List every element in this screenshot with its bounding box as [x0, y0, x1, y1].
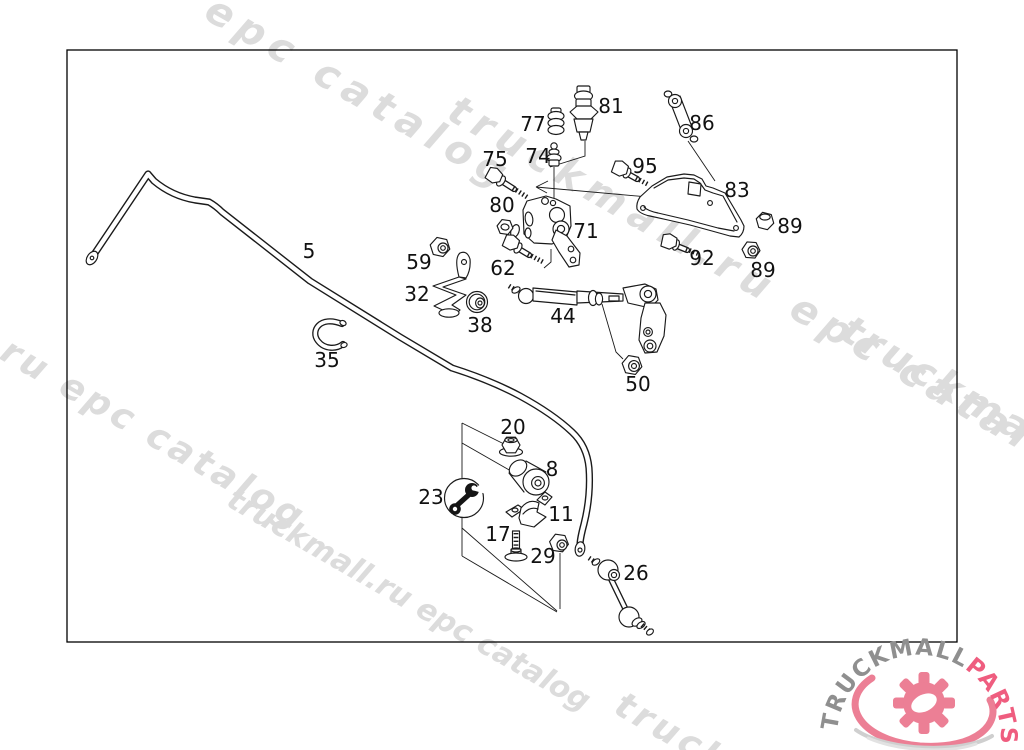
parts-diagram: truckmall.ru epc catalog truckmall.ru ep…: [0, 0, 1024, 750]
part-label-71: 71: [573, 219, 598, 243]
part-label-29: 29: [530, 544, 555, 568]
part-label-11: 11: [548, 502, 573, 526]
part-label-74: 74: [525, 144, 550, 168]
part-label-59: 59: [406, 250, 431, 274]
part-23-service-symbol: [445, 479, 487, 522]
part-label-62: 62: [490, 256, 515, 280]
part-77-bellows: [548, 108, 564, 135]
part-label-92: 92: [689, 246, 714, 270]
part-35-clip: [315, 319, 348, 348]
part-32-bracket: [433, 252, 470, 317]
part-label-83: 83: [724, 178, 749, 202]
part-20-nut: [500, 437, 523, 456]
gear-icon: [893, 672, 955, 734]
logo-brand-text: TRUCKMALL: [817, 635, 973, 732]
part-label-44: 44: [550, 304, 575, 328]
part-label-80: 80: [489, 193, 514, 217]
watermark-text: truckmall.ru epc catalog: [0, 0, 522, 200]
part-label-17: 17: [485, 522, 510, 546]
part-59-nut: [428, 236, 451, 257]
part-8-bushing: [506, 457, 549, 495]
watermark-text: truckmall.ru epc catalog: [833, 307, 1024, 670]
part-label-38: 38: [467, 313, 492, 337]
part-label-75: 75: [482, 147, 507, 171]
part-81-valve: [570, 86, 598, 140]
part-label-50: 50: [625, 372, 650, 396]
part-89-nut-upper: [754, 211, 775, 230]
part-label-5: 5: [303, 239, 316, 263]
part-label-89a: 89: [777, 214, 802, 238]
part-label-81: 81: [598, 94, 623, 118]
part-label-35: 35: [314, 348, 339, 372]
part-label-86: 86: [689, 111, 714, 135]
part-label-26: 26: [623, 561, 648, 585]
watermark-pattern: truckmall.ru epc catalog truckmall.ru ep…: [0, 0, 1024, 750]
part-label-23: 23: [418, 485, 443, 509]
part-label-20: 20: [500, 415, 525, 439]
part-11-clamp: [506, 492, 552, 527]
logo-suffix-text: PARTS: [961, 653, 1021, 746]
part-label-89b: 89: [750, 258, 775, 282]
part-label-77: 77: [520, 112, 545, 136]
catalog-page: truckmall.ru epc catalog truckmall.ru ep…: [0, 0, 1024, 750]
watermark-text: truckmall.ru epc catalog: [0, 207, 314, 538]
part-38-grommet: [467, 292, 488, 313]
part-44-cylinder: [509, 284, 666, 353]
part-label-8: 8: [546, 457, 559, 481]
bar-right-eye: [574, 541, 586, 557]
part-label-32: 32: [404, 282, 429, 306]
brand-logo: TRUCKMALLPARTS: [817, 635, 1021, 750]
part-label-95: 95: [632, 154, 657, 178]
